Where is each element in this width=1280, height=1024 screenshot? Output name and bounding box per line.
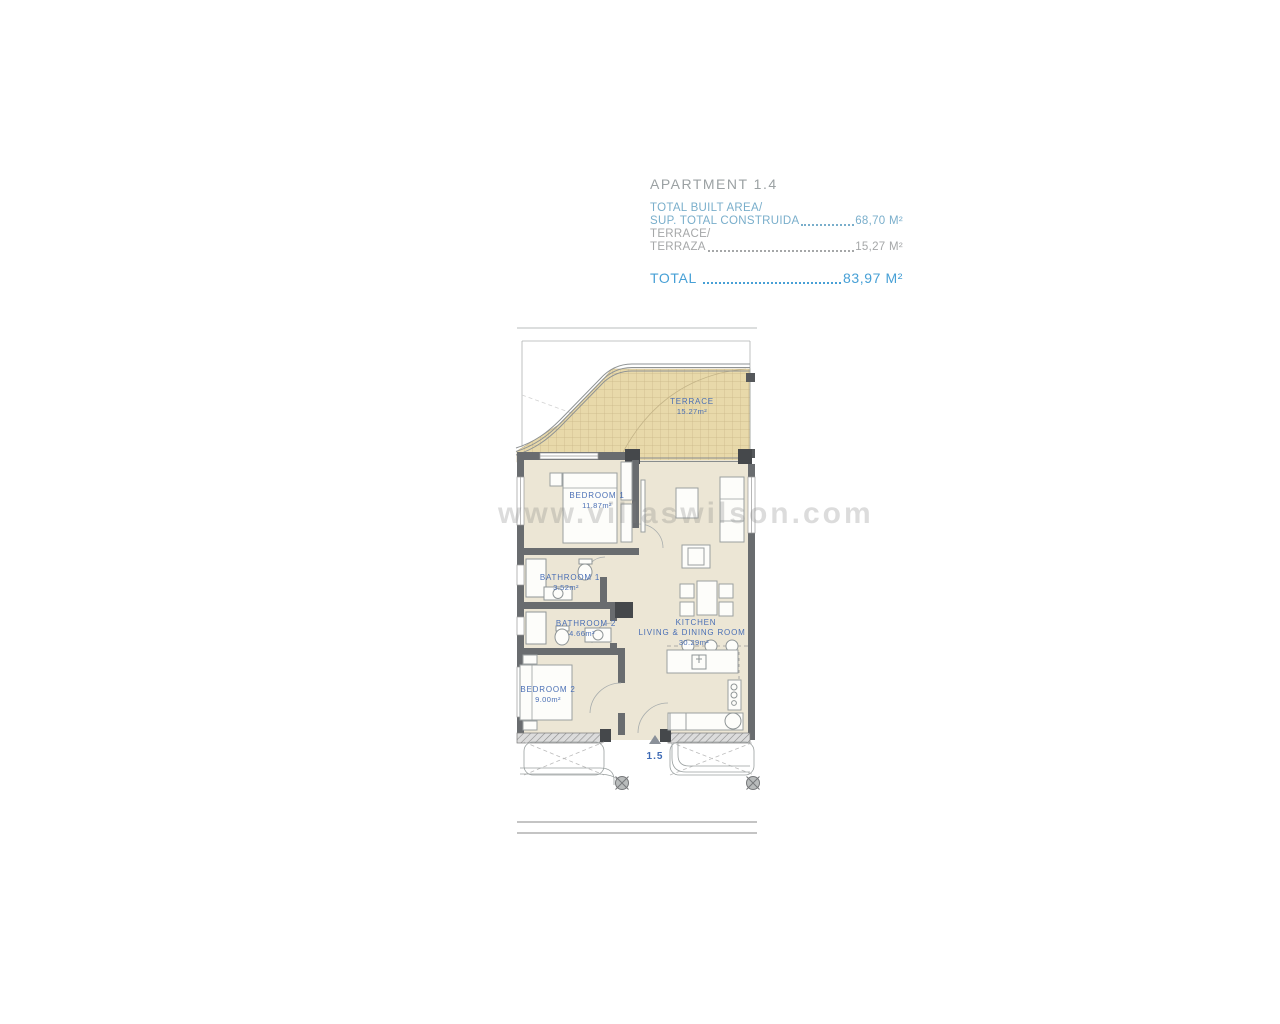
- terrace-value: 15,27 M²: [855, 241, 903, 254]
- kitchen-appliance: [670, 713, 686, 730]
- dining-table: [697, 581, 717, 615]
- dining-chair: [719, 584, 733, 598]
- dining-chair: [719, 602, 733, 616]
- kitchen-area: 30.29m²: [679, 638, 709, 647]
- bathroom2-shower: [526, 612, 546, 644]
- total-value: 83,97 M²: [843, 270, 903, 286]
- dining-chair: [680, 602, 694, 616]
- dotted-leader: [708, 250, 854, 252]
- built-area-value: 68,70 M²: [855, 215, 903, 228]
- terrace-row: TERRAZA 15,27 M²: [650, 241, 903, 254]
- column-marker: [616, 777, 760, 790]
- terrace-area: [516, 364, 755, 462]
- bathroom2-toilet: [555, 629, 569, 645]
- watermark: www.villaswilson.com: [498, 497, 838, 531]
- terrace-label-es: TERRAZA: [650, 241, 706, 254]
- kitchen-round-sink: [725, 713, 741, 729]
- bedroom2-nightstand: [523, 721, 537, 730]
- terrace-label-en: TERRACE/: [650, 228, 903, 241]
- bedroom2-label: BEDROOM 2: [520, 685, 575, 694]
- dotted-leader: [703, 282, 841, 284]
- bedroom2-area: 9.00m²: [535, 695, 561, 704]
- bathroom2-area: 4.66m²: [569, 629, 595, 638]
- exterior-lower: [517, 742, 760, 833]
- kitchen-label-line1: KITCHEN: [676, 618, 717, 627]
- built-area-label-es: SUP. TOTAL CONSTRUIDA: [650, 215, 799, 228]
- terrace-tiles: [517, 369, 750, 462]
- bathroom2-label: BATHROOM 2: [556, 619, 616, 628]
- kitchen-label-line2: LIVING & DINING ROOM: [638, 628, 745, 637]
- bathroom1-label: BATHROOM 1: [540, 573, 600, 582]
- terrace-area: 15.27m²: [677, 407, 707, 416]
- bedroom2-nightstand: [523, 655, 537, 664]
- bathroom1-toilet-tank: [579, 559, 592, 564]
- apartment-info-panel: APARTMENT 1.4 TOTAL BUILT AREA/ SUP. TOT…: [650, 176, 903, 286]
- bedroom1-nightstand: [550, 473, 562, 486]
- terrace-label: TERRACE: [670, 397, 714, 406]
- apartment-title: APARTMENT 1.4: [650, 176, 903, 192]
- bathroom1-area: 3.52m²: [553, 583, 579, 592]
- total-row: TOTAL 83,97 M²: [650, 270, 903, 286]
- floorplan-drawing: 1.5 TERRACE 15.27m² BEDROOM 1 11.87m² BA…: [500, 325, 800, 840]
- page: APARTMENT 1.4 TOTAL BUILT AREA/ SUP. TOT…: [0, 0, 1280, 1024]
- entry-marker-label: 1.5: [647, 751, 664, 762]
- dotted-leader: [801, 224, 854, 226]
- built-area-row: SUP. TOTAL CONSTRUIDA 68,70 M²: [650, 215, 903, 228]
- total-label: TOTAL: [650, 270, 697, 286]
- dining-chair: [680, 584, 694, 598]
- built-area-label-en: TOTAL BUILT AREA/: [650, 202, 903, 215]
